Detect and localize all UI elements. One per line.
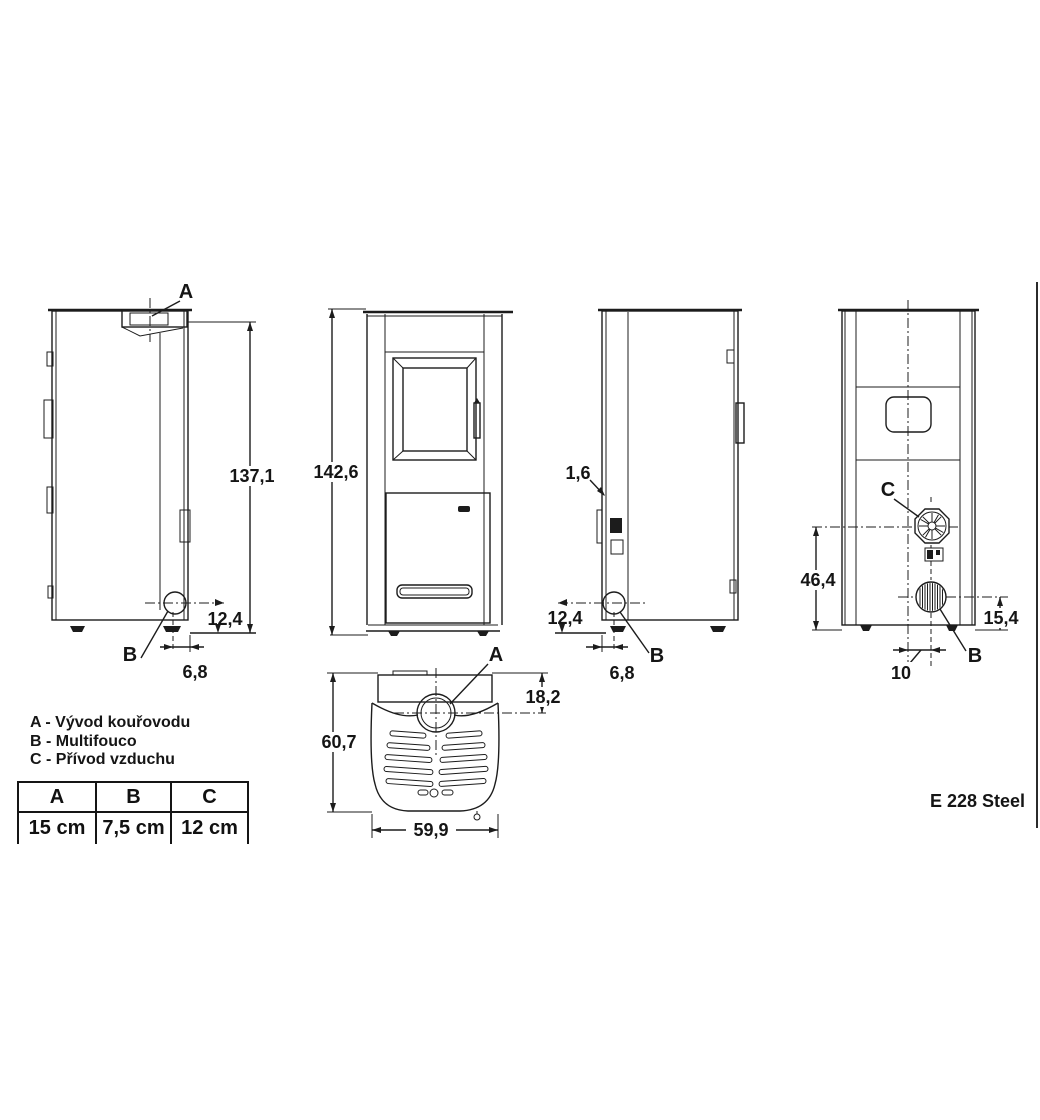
leader-A: [152, 301, 180, 316]
table-value-c: 12 cm: [172, 813, 247, 844]
leader-A: [450, 664, 488, 704]
latch: [458, 506, 470, 512]
front-view: 142,6: [311, 309, 513, 636]
dim-flue-offset: [893, 647, 946, 663]
stove-dimension-drawing: A B 137,1 12,4 6,8: [0, 0, 1040, 1120]
right-side-view: 1,6 12,4 6,8 B: [547, 310, 744, 683]
flue-outlet-circle: [916, 582, 946, 612]
leader-C: [894, 499, 919, 517]
dim-text-width: 59,9: [413, 820, 448, 840]
foot: [477, 631, 489, 636]
table-header-a: A: [19, 783, 97, 813]
table-header-b: B: [97, 783, 172, 813]
flue-label: B: [968, 645, 982, 667]
legend-item-a: A - Vývod kouřovodu: [30, 714, 190, 733]
legend-item-b: B - Multifouco: [30, 733, 190, 752]
flue-label: A: [179, 281, 193, 303]
model-label: E 228 Steel: [900, 791, 1025, 812]
left-side-view: A B 137,1 12,4 6,8: [44, 281, 277, 682]
rear-view: C B 46,4 15,4 10: [796, 300, 1024, 683]
top-view: A 60,7 59,9 18,2: [317, 644, 565, 840]
terminal-plate: [925, 548, 943, 561]
dim-text-depth: 60,7: [321, 732, 356, 752]
air-label: C: [881, 479, 895, 501]
foot: [710, 626, 726, 632]
table-header-c: C: [172, 783, 247, 813]
dim-text-height-to-flue: 137,1: [229, 466, 274, 486]
dim-text-overall-height: 142,6: [313, 462, 358, 482]
technical-drawing-page: A B 137,1 12,4 6,8: [0, 0, 1040, 1120]
foot: [388, 631, 400, 636]
dim-text-flue-offset: 10: [891, 663, 911, 683]
door-handle: [474, 398, 480, 438]
flue-outlet-collar: [122, 298, 187, 342]
table-value-a: 15 cm: [19, 813, 97, 844]
door-pull: [474, 811, 480, 820]
legend-item-c: C - Přívod vzduchu: [30, 751, 190, 770]
frame-border: [1036, 282, 1038, 828]
multifuoco-label: B: [123, 644, 137, 666]
dim-text-air-inlet-height: 46,4: [800, 570, 835, 590]
dim-text-flue-height: 15,4: [983, 608, 1018, 628]
dimensions-table: A B C 15 cm 7,5 cm 12 cm: [17, 781, 249, 844]
foot: [610, 626, 626, 632]
vent-slot: [397, 585, 472, 598]
foot: [163, 626, 181, 632]
dim-text-wall-thickness: 1,6: [565, 463, 590, 483]
lower-door: [386, 493, 490, 623]
flue-label: A: [489, 644, 503, 666]
dim-text-multifuoco-height: 12,4: [207, 609, 242, 629]
foot: [70, 626, 85, 632]
dim-text-flue-from-back: 18,2: [525, 687, 560, 707]
door-window: [393, 358, 476, 460]
table-value-b: 7,5 cm: [97, 813, 172, 844]
power-socket: [610, 518, 622, 533]
dim-text-multifuoco-from-back: 6,8: [609, 663, 634, 683]
legend: A - Vývod kouřovodu B - Multifouco C - P…: [30, 714, 190, 770]
dim-text-multifuoco-from-back: 6,8: [182, 662, 207, 682]
dim-wall-thickness: [590, 480, 605, 496]
leader-B: [940, 609, 966, 651]
air-inlet-fan: [915, 509, 949, 543]
foot: [860, 625, 872, 631]
door-handle-side: [736, 403, 744, 443]
multifuoco-label: B: [650, 645, 664, 667]
leader-B: [141, 611, 168, 658]
dim-text-multifuoco-height: 12,4: [547, 608, 582, 628]
